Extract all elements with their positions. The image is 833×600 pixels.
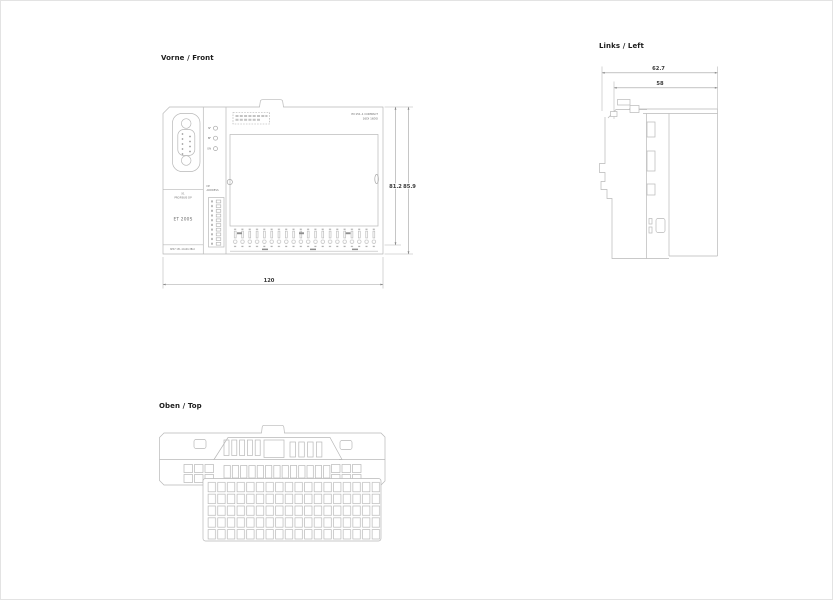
top-terminal-grid [203, 479, 381, 542]
top-view-drawing [1, 1, 833, 600]
top-ridge-slots [214, 438, 342, 460]
technical-drawing-page: Vorne / Front [0, 0, 833, 600]
top-housing-outline [160, 425, 386, 485]
